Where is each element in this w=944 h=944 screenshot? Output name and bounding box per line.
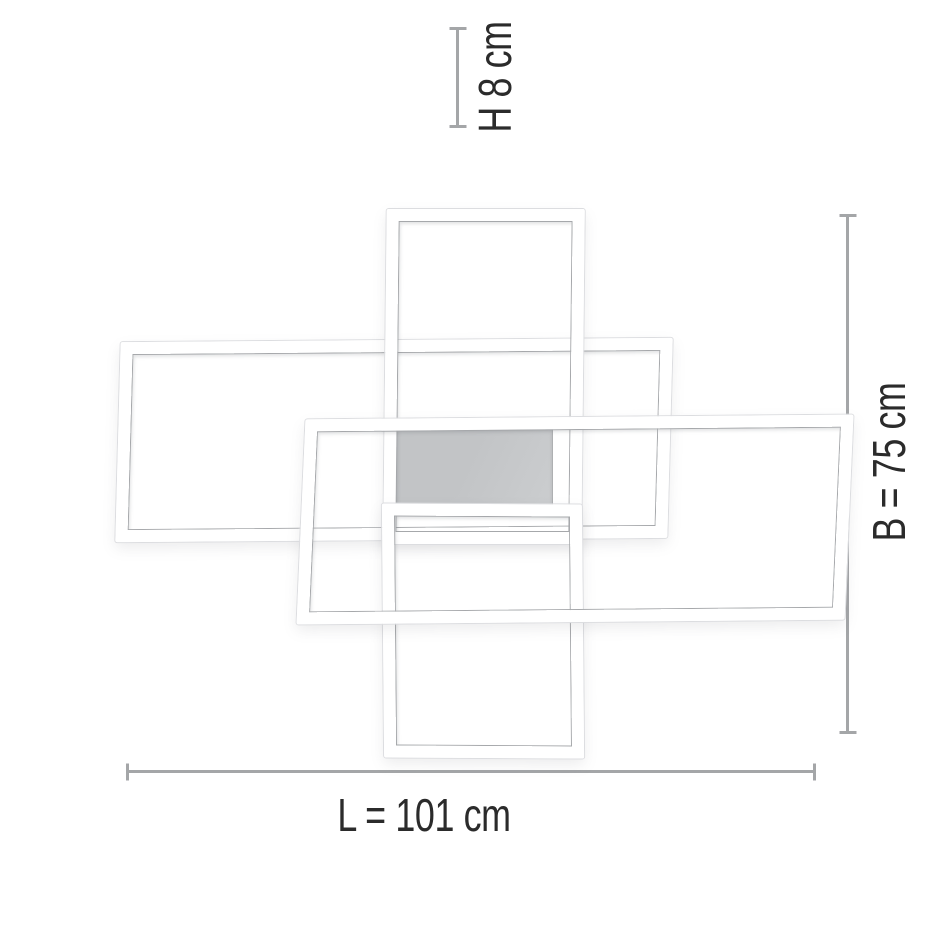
tick-cap xyxy=(449,27,466,30)
length-dimension-label: L = 101 cm xyxy=(337,792,510,838)
length-dimension-line xyxy=(127,770,815,773)
tick-cap xyxy=(449,125,466,128)
product-dimension-diagram: H 8 cm B = 75 cm L = 101 cm xyxy=(0,0,944,944)
tick-cap xyxy=(839,214,856,217)
tick-cap xyxy=(813,763,816,780)
frame-right-rect xyxy=(297,415,854,625)
height-dimension-line xyxy=(456,28,459,127)
height-dimension-label: H 8 cm xyxy=(472,21,518,132)
tick-cap xyxy=(839,731,856,734)
width-dimension-label: B = 75 cm xyxy=(866,382,912,541)
tick-cap xyxy=(126,763,129,780)
